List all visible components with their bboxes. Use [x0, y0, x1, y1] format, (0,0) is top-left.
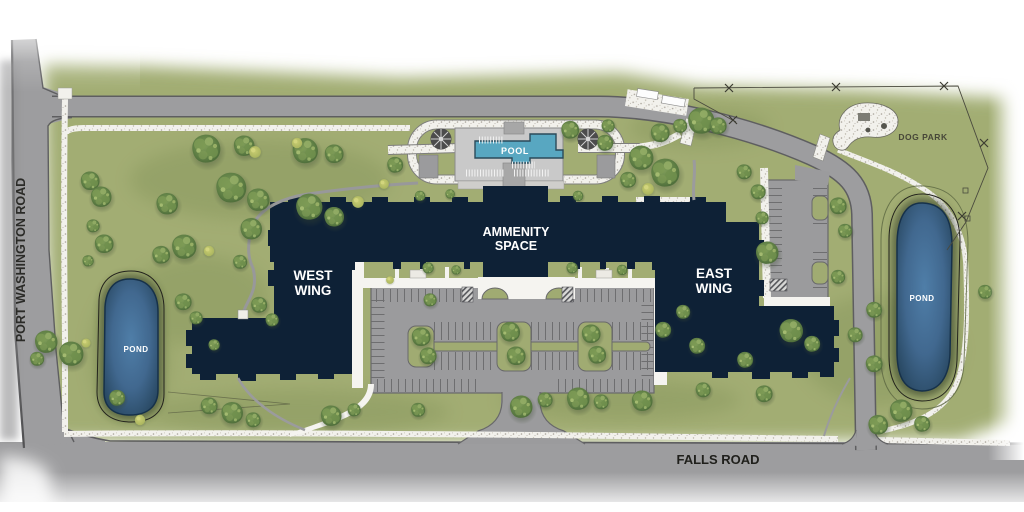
svg-text:POND: POND [123, 345, 148, 354]
svg-text:DOG PARK: DOG PARK [898, 132, 948, 142]
svg-text:PORT WASHINGTON ROAD: PORT WASHINGTON ROAD [14, 178, 28, 342]
svg-text:POND: POND [909, 294, 934, 303]
svg-text:EAST: EAST [696, 266, 733, 281]
svg-text:WING: WING [696, 281, 733, 296]
svg-text:FALLS ROAD: FALLS ROAD [676, 452, 759, 467]
svg-text:WEST: WEST [294, 268, 334, 283]
svg-text:WING: WING [295, 283, 332, 298]
svg-text:POOL: POOL [501, 146, 529, 156]
svg-text:SPACE: SPACE [495, 239, 537, 253]
svg-text:AMMENITY: AMMENITY [483, 225, 550, 239]
